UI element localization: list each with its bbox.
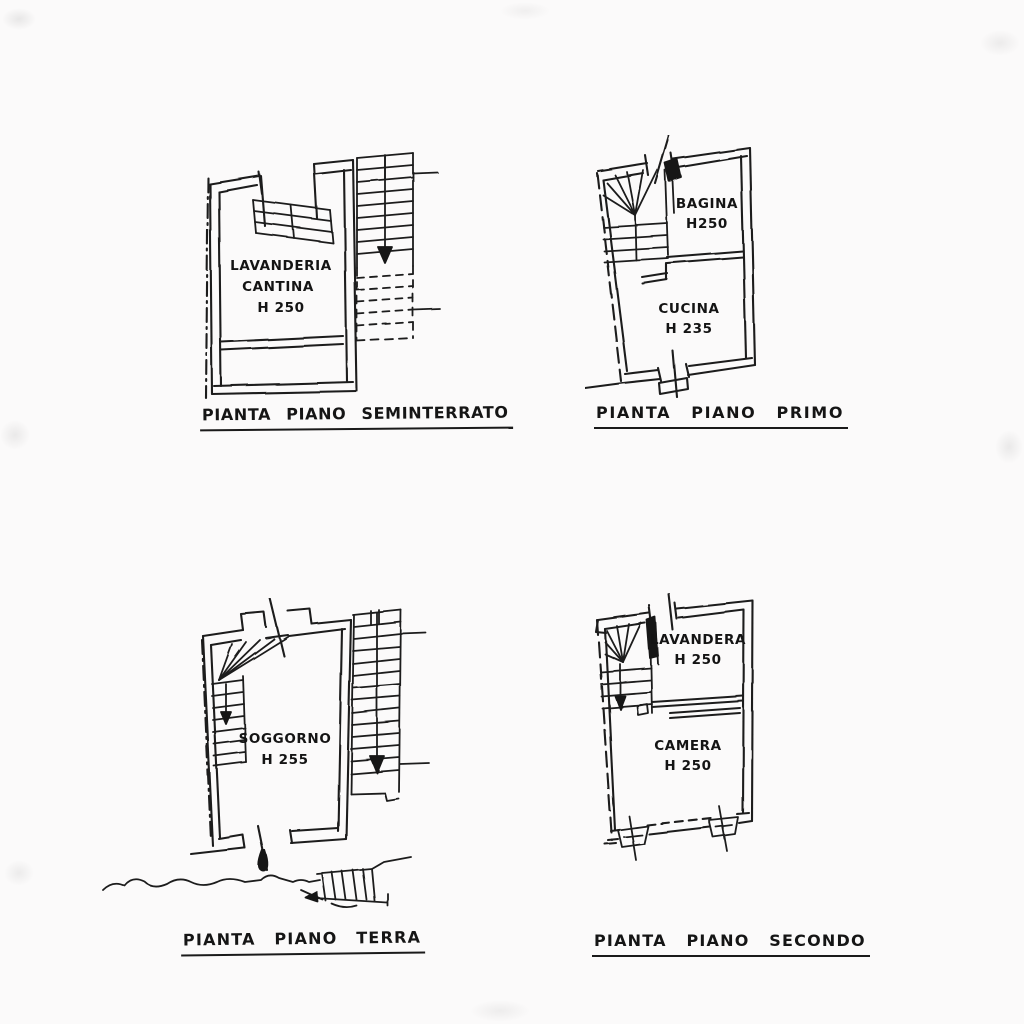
- external-stair: [357, 153, 440, 341]
- room-height: H 250: [664, 758, 711, 774]
- stair-down-arrow-icon: [370, 756, 384, 773]
- room-name: CUCINA: [658, 301, 719, 317]
- ground-line: [585, 383, 623, 388]
- ground-squiggle-line: [103, 875, 320, 890]
- room-height: H 250: [674, 652, 721, 668]
- caption-piano-primo: PIANTA PIANO PRIMO: [594, 403, 848, 429]
- room-label-soggiorno: SOGGORNO H 255: [239, 731, 332, 768]
- property-boundary-line: [206, 178, 208, 398]
- room-label-lavanderia-cantina: LAVANDERIA CANTINA H 250: [230, 258, 332, 316]
- caption-piano-terra: PIANTA PIANO TERRA: [181, 928, 425, 957]
- paper-smudge: [470, 1000, 530, 1022]
- partition-walls: [642, 251, 743, 283]
- room-height: H 255: [261, 752, 308, 768]
- floor-plan-seminterrato: LAVANDERIA CANTINA H 250: [195, 148, 445, 412]
- room-height: H 235: [665, 321, 712, 337]
- room-label-cucina: CUCINA H 235: [658, 301, 719, 337]
- partition-walls: [652, 696, 743, 718]
- floor-plan-primo: BAGINA H250 CUCINA H 235: [585, 135, 860, 407]
- paper-smudge: [980, 30, 1020, 56]
- paper-smudge: [2, 8, 36, 30]
- property-boundary-line: [202, 640, 211, 840]
- room-height: H 250: [257, 300, 304, 316]
- room-label-bagno: BAGINA H250: [676, 196, 738, 232]
- room-label-camera: CAMERA H 250: [654, 738, 721, 774]
- entry-arrow-icon: [258, 850, 267, 871]
- walls: [210, 160, 357, 394]
- room-name: BAGINA: [676, 196, 738, 212]
- paper-smudge: [500, 2, 550, 20]
- paper-smudge: [995, 430, 1023, 464]
- caption-piano-secondo: PIANTA PIANO SECONDO: [592, 931, 870, 957]
- paper-smudge: [4, 860, 34, 886]
- paper-smudge: [0, 420, 30, 450]
- door-mark: [669, 594, 673, 630]
- terrain: [103, 875, 323, 900]
- entry-step: [659, 378, 688, 394]
- room-name: CAMERA: [654, 738, 721, 754]
- winder-stair: [603, 159, 681, 262]
- room-label-lavanderia: LAVANDERA H 250: [650, 632, 746, 668]
- floor-plan-secondo: LAVANDERA H 250 CAMERA H 250: [585, 592, 860, 894]
- room-name: LAVANDERA: [650, 632, 746, 648]
- room-name: SOGGORNO: [239, 731, 332, 747]
- section-mark-line: [655, 135, 669, 183]
- windows: [618, 806, 738, 860]
- caption-piano-seminterrato: PIANTA PIANO SEMINTERRATO: [200, 403, 513, 432]
- stair-down-arrow-icon: [378, 247, 392, 263]
- room-name: CANTINA: [242, 279, 314, 295]
- external-stair: [351, 610, 429, 801]
- room-name: LAVANDERIA: [230, 258, 332, 274]
- room-height: H250: [686, 216, 728, 232]
- floor-plan-sheet: { "page": { "paper_color": "#fbfafa", "i…: [0, 0, 1024, 1024]
